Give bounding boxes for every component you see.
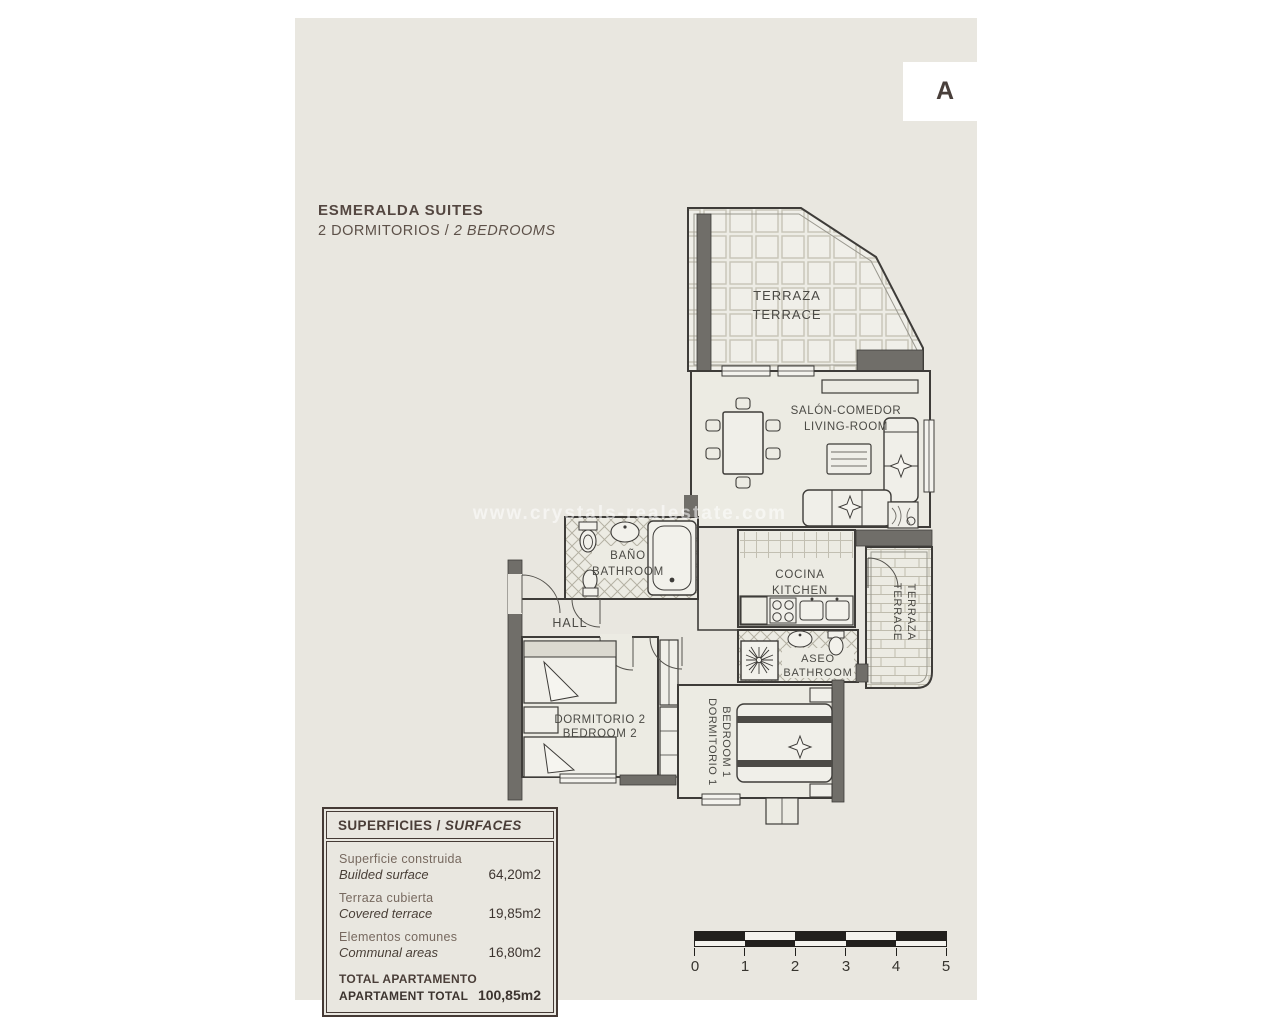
terrace-top-room: TERRAZA TERRACE <box>688 208 923 371</box>
shower <box>741 641 778 680</box>
closet <box>660 707 678 777</box>
nightstand <box>524 707 558 733</box>
row-value: 16,80m2 <box>488 945 541 960</box>
unit-letter: A <box>936 77 954 106</box>
total-label-es: TOTAL APARTAMENTO <box>339 972 541 986</box>
scale-tick-3: 3 <box>842 958 850 975</box>
surfaces-header-es: SUPERFICIES / <box>338 818 441 833</box>
wall-block <box>857 350 923 371</box>
row-label-es: Elementos comunes <box>339 930 541 944</box>
bedroom2-room: DORMITORIO 2 BEDROOM 2 <box>522 634 678 785</box>
bedroom1-label-en: BEDROOM 1 <box>720 706 732 777</box>
scale-bar: 0 1 2 3 4 5 <box>694 931 947 979</box>
surfaces-table-header: SUPERFICIES / SURFACES <box>326 811 554 839</box>
scale-tick-2: 2 <box>791 958 799 975</box>
floorplan-drawing: TERRAZA TERRACE <box>0 0 1280 1024</box>
nightstand <box>810 784 832 797</box>
scale-tick-1: 1 <box>741 958 749 975</box>
kitchen-label-es: COCINA <box>775 569 825 581</box>
subtitle-es: 2 DORMITORIOS / <box>318 223 449 239</box>
surfaces-header-en: SURFACES <box>445 818 522 833</box>
entrance-door-arc <box>522 575 560 613</box>
wall-block <box>620 775 676 785</box>
door-opening <box>508 574 522 614</box>
bed-single-2 <box>524 737 616 777</box>
terrace-side-label-es: TERRAZA <box>905 584 917 641</box>
terrace-top-label-en: TERRACE <box>752 307 821 322</box>
bed-double <box>737 688 832 797</box>
wall-block <box>832 680 844 802</box>
surfaces-table: SUPERFICIES / SURFACES Superficie constr… <box>322 807 558 1017</box>
living-label-en: LIVING-ROOM <box>804 421 888 433</box>
bedroom2-label-en: BEDROOM 2 <box>563 728 637 740</box>
row-label-es: Superficie construida <box>339 852 541 866</box>
bathtub <box>648 521 696 595</box>
window <box>702 794 740 805</box>
bed-single-1 <box>524 641 616 703</box>
nightstand <box>810 688 832 702</box>
wall-block <box>856 530 932 546</box>
toilet <box>579 522 597 552</box>
sink <box>611 522 639 542</box>
subtitle-en: 2 BEDROOMS <box>454 223 556 239</box>
aseo-label-en: BATHROOM <box>783 667 852 679</box>
bedroom2-label-es: DORMITORIO 2 <box>554 714 645 726</box>
wall-block <box>697 214 711 371</box>
living-label-es: SALÓN-COMEDOR <box>791 404 902 417</box>
scale-tick-4: 4 <box>892 958 900 975</box>
row-label-es: Terraza cubierta <box>339 891 541 905</box>
page-title: ESMERALDA SUITES <box>318 202 556 219</box>
total-value: 100,85m2 <box>478 987 541 1003</box>
bathroom-label-en: BATHROOM <box>592 566 664 578</box>
table-row: Elementos comunes Communal areas 16,80m2 <box>339 930 541 960</box>
aseo-sink <box>788 631 812 647</box>
wall-block <box>856 664 868 682</box>
scale-tick-0: 0 <box>691 958 699 975</box>
bedroom1-label-es: DORMITORIO 1 <box>706 698 718 786</box>
page-subtitle: 2 DORMITORIOS / 2 BEDROOMS <box>318 223 556 239</box>
door-opening <box>600 634 632 640</box>
kitchen-label-en: KITCHEN <box>772 585 828 597</box>
row-value: 64,20m2 <box>488 867 541 882</box>
scale-bar-segments <box>694 931 947 947</box>
fridge <box>741 597 767 624</box>
floorplan-page: TERRAZA TERRACE <box>0 0 1280 1024</box>
aseo-label-es: ASEO <box>801 653 835 665</box>
hall-label: HALL <box>552 616 587 630</box>
surfaces-table-body: Superficie construida Builded surface 64… <box>326 841 554 1013</box>
table-row: Superficie construida Builded surface 64… <box>339 852 541 882</box>
window <box>560 774 616 783</box>
side-table <box>888 502 918 528</box>
unit-badge: A <box>903 62 987 121</box>
row-label-en: Covered terrace <box>339 906 432 921</box>
aseo-room: ASEO BATHROOM <box>738 630 858 682</box>
kitchen-tiles <box>740 532 853 558</box>
row-label-en: Communal areas <box>339 945 438 960</box>
bathroom-label-es: BAÑO <box>610 549 646 562</box>
total-label-en: APARTAMENT TOTAL <box>339 989 468 1003</box>
coffee-table <box>827 444 871 474</box>
scale-tick-5: 5 <box>942 958 950 975</box>
terrace-side-room: TERRAZA TERRACE <box>856 530 932 688</box>
bathroom-room: BAÑO BATHROOM <box>565 517 698 627</box>
terrace-side-label-en: TERRACE <box>891 583 903 641</box>
watermark-text: www.crystals-realestate.com <box>472 503 787 524</box>
kitchen-room: COCINA KITCHEN <box>738 530 855 627</box>
table-total-row: TOTAL APARTAMENTO APARTAMENT TOTAL 100,8… <box>339 972 541 1003</box>
row-value: 19,85m2 <box>488 906 541 921</box>
terrace-top-label-es: TERRAZA <box>753 288 821 303</box>
tv-cabinet <box>822 380 918 393</box>
table-row: Terraza cubierta Covered terrace 19,85m2 <box>339 891 541 921</box>
plan-title-block: ESMERALDA SUITES 2 DORMITORIOS / 2 BEDRO… <box>318 202 556 239</box>
aseo-toilet <box>828 631 844 655</box>
row-label-en: Builded surface <box>339 867 429 882</box>
